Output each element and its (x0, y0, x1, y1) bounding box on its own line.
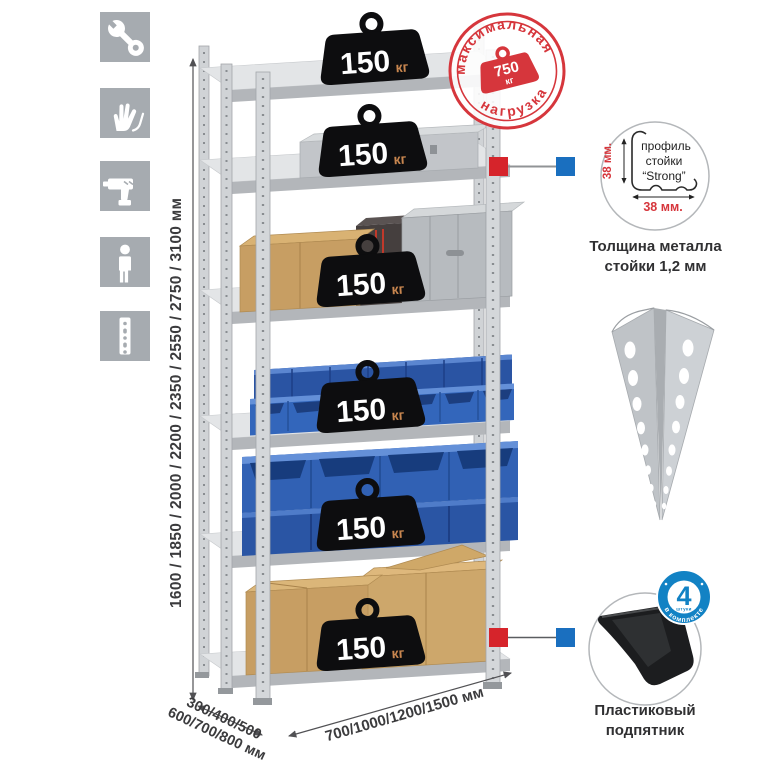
feature-tile-gloves (100, 88, 150, 138)
svg-text:38 мм.: 38 мм. (602, 143, 614, 179)
person-icon (100, 237, 150, 287)
plastic-foot-caption-line1: Пластиковый (545, 701, 745, 721)
feature-tile-upright (100, 311, 150, 361)
svg-text:“Strong”: “Strong” (642, 169, 685, 183)
wrench-icon (100, 12, 150, 62)
plastic-foot-caption: Пластиковый подпятник (545, 701, 745, 740)
gloves-icon (100, 88, 150, 138)
plastic-foot-caption-line2: подпятник (545, 721, 745, 741)
feature-tile-assembly (100, 12, 150, 62)
feature-tile-person (100, 237, 150, 287)
svg-text:кг: кг (395, 59, 409, 76)
svg-text:150: 150 (337, 137, 389, 173)
svg-text:38 мм.: 38 мм. (643, 200, 682, 214)
svg-text:150: 150 (335, 267, 387, 303)
svg-text:150: 150 (335, 631, 387, 667)
svg-text:150: 150 (335, 511, 387, 547)
height-dimension-label: 1600 / 1850 / 2000 / 2200 / 2350 / 2550 … (168, 208, 186, 608)
weight-150kg-1: 150 кг (317, 11, 430, 85)
svg-text:штуки: штуки (676, 607, 692, 612)
svg-text:профиль: профиль (641, 139, 691, 153)
infographic-canvas: 150 кг 150 кг 150 кг 150 кг 150 кг (0, 0, 765, 765)
quantity-badge: в комплекте 4 штуки (657, 570, 711, 624)
svg-text:кг: кг (391, 281, 405, 298)
svg-text:кг: кг (391, 407, 405, 424)
perforated-upright-icon (100, 311, 150, 361)
profile-thickness-caption: Толщина металла стойки 1,2 мм (553, 237, 758, 276)
profile-thickness-caption-line2: стойки 1,2 мм (553, 257, 758, 277)
callout-connector-bottom (489, 628, 575, 647)
svg-text:кг: кг (393, 151, 407, 168)
callout-connector-top (489, 157, 575, 176)
drill-icon (100, 161, 150, 211)
svg-text:стойки: стойки (646, 154, 683, 168)
feature-tile-drill (100, 161, 150, 211)
max-load-stamp: максимальная нагрузка 750 кг (438, 2, 576, 140)
perforated-angle-profile (612, 308, 714, 520)
weight-150kg-2: 150 кг (315, 103, 428, 177)
svg-text:кг: кг (391, 525, 405, 542)
svg-text:150: 150 (339, 45, 391, 81)
svg-text:150: 150 (335, 393, 387, 429)
svg-text:кг: кг (391, 645, 405, 662)
profile-thickness-caption-line1: Толщина металла (553, 237, 758, 257)
profile-detail-circle: 38 мм. 38 мм. профиль стойки “Strong” (601, 122, 709, 230)
